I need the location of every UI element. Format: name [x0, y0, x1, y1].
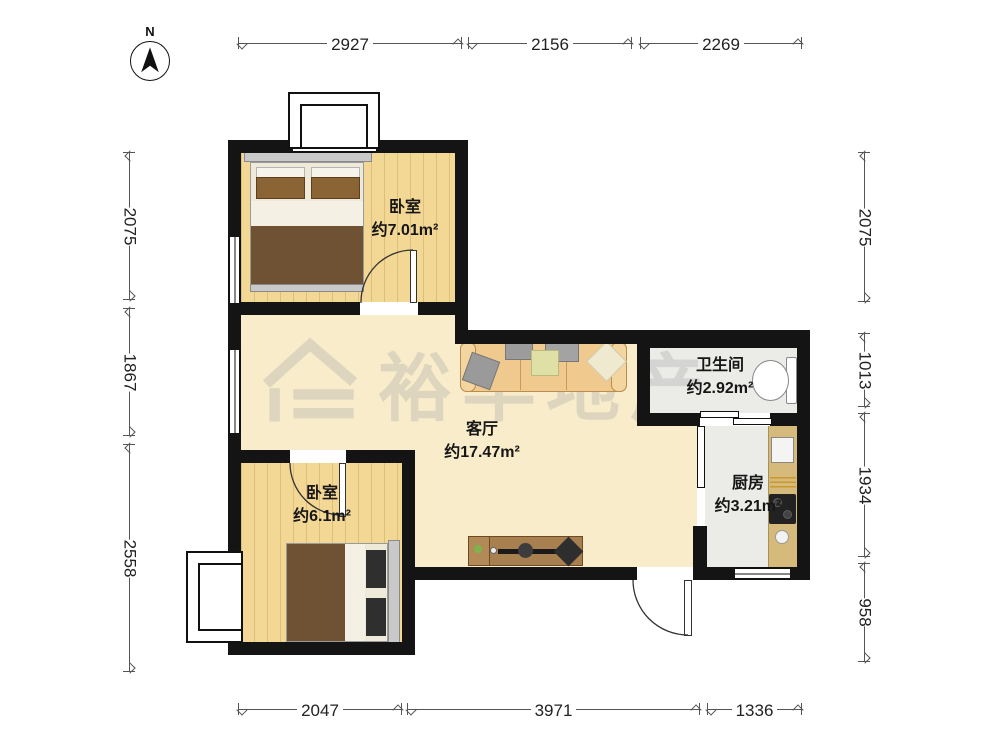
wall [637, 330, 810, 348]
dimension-label: 3971 [531, 702, 577, 719]
dimension-label: 1934 [853, 466, 878, 504]
wall [637, 413, 700, 426]
dimension-left-1: 2075 [122, 152, 138, 300]
living-room-floor [415, 450, 455, 567]
dimension-top-2: 2156 [468, 36, 632, 52]
dimension-label: 2156 [527, 36, 573, 53]
sink [775, 530, 789, 544]
room-name: 客厅 [400, 418, 564, 441]
dimension-label: 1013 [853, 351, 878, 389]
room-area: 约6.1m² [248, 505, 396, 528]
room-label-living-room: 客厅 约17.47m² [400, 418, 564, 464]
room-area: 约3.21m² [678, 495, 818, 518]
wall [402, 567, 637, 580]
bed-blanket [287, 544, 345, 641]
sliding-door [733, 418, 772, 425]
bed-sheet [345, 544, 365, 641]
bay-window [186, 551, 243, 643]
dimension-left-2: 1867 [122, 308, 138, 436]
dimension-bottom-2: 3971 [407, 702, 700, 718]
wall [790, 567, 810, 580]
dimension-label: 958 [853, 598, 878, 626]
wall [228, 642, 415, 655]
wall [228, 303, 241, 350]
door-leaf [410, 250, 417, 303]
room-name: 厨房 [678, 472, 818, 495]
north-label: N [126, 24, 174, 39]
dimension-top-3: 2269 [640, 36, 802, 52]
dimension-label: 1336 [732, 702, 778, 719]
wall [346, 450, 402, 463]
dimension-label: 2075 [853, 208, 878, 246]
wall [228, 140, 241, 237]
dimension-right-3: 1934 [857, 413, 873, 557]
dimension-label: 1867 [118, 353, 143, 391]
room-name: 卧室 [330, 196, 480, 219]
room-label-bedroom-top: 卧室 约7.01m² [330, 196, 480, 242]
bed-footboard [250, 284, 364, 292]
wall [402, 450, 415, 655]
room-label-bedroom-bottom: 卧室 约6.1m² [248, 482, 396, 528]
dimension-bottom-3: 1336 [707, 702, 802, 718]
north-indicator: N [126, 24, 174, 81]
wall [228, 463, 241, 557]
room-area: 约17.47m² [400, 441, 564, 464]
bed-headboard [388, 540, 400, 645]
sliding-door [700, 411, 739, 418]
window [735, 567, 790, 580]
pillow [366, 598, 386, 636]
dimension-label: 2269 [698, 36, 744, 53]
wall [241, 302, 360, 315]
pillow [256, 177, 305, 199]
room-area: 约2.92m² [648, 377, 792, 400]
bay-window [288, 92, 380, 149]
dimension-right-2: 1013 [857, 333, 873, 407]
knob [490, 547, 497, 554]
window [228, 237, 241, 303]
north-arrow-icon [130, 41, 170, 81]
window [228, 350, 241, 433]
wall [797, 330, 810, 580]
dimension-right-4: 958 [857, 563, 873, 662]
wall [418, 302, 455, 315]
wall [228, 433, 241, 450]
entry-door-leaf [684, 580, 692, 636]
wall [693, 567, 735, 580]
room-name: 卫生间 [648, 354, 792, 377]
dimension-right-1: 2075 [857, 152, 873, 302]
speaker [518, 543, 533, 558]
plant [474, 545, 482, 553]
floor-plan: 裕丰地产 [0, 0, 1000, 750]
dimension-label: 2927 [327, 36, 373, 53]
room-name: 卧室 [248, 482, 396, 505]
room-area: 约7.01m² [330, 219, 480, 242]
dimension-label: 2047 [297, 702, 343, 719]
sofa-cushion [531, 350, 559, 376]
dimension-left-3: 2558 [122, 444, 138, 672]
pillow [366, 550, 386, 588]
wall [770, 413, 797, 426]
room-label-bathroom: 卫生间 约2.92m² [648, 354, 792, 400]
dimension-bottom-1: 2047 [238, 702, 402, 718]
dimension-top-1: 2927 [238, 36, 462, 52]
fridge [771, 437, 794, 463]
wall [228, 450, 290, 463]
dimension-label: 2075 [118, 207, 143, 245]
room-label-kitchen: 厨房 约3.21m² [678, 472, 818, 518]
wall [468, 330, 637, 344]
dimension-label: 2558 [118, 539, 143, 577]
